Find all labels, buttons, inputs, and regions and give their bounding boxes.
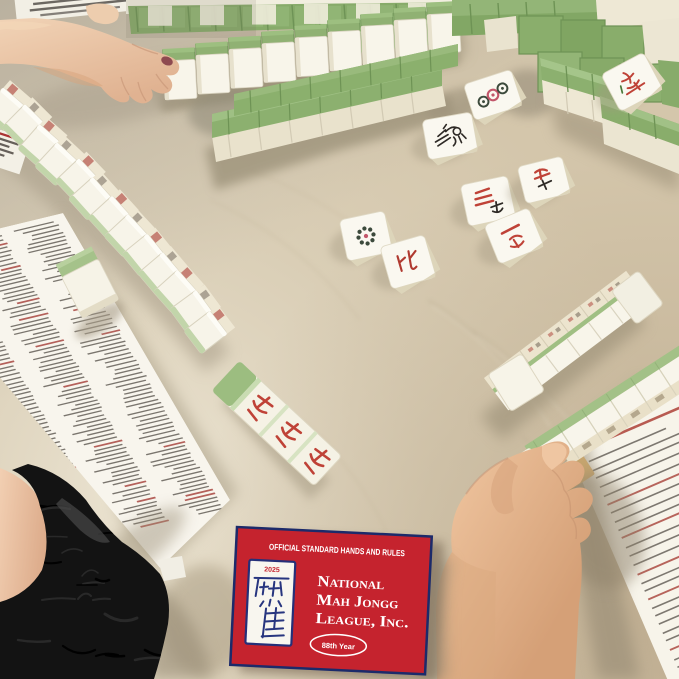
svg-text:88th Year: 88th Year: [321, 641, 355, 652]
svg-text:2025: 2025: [264, 566, 280, 574]
svg-text:National: National: [317, 573, 385, 593]
